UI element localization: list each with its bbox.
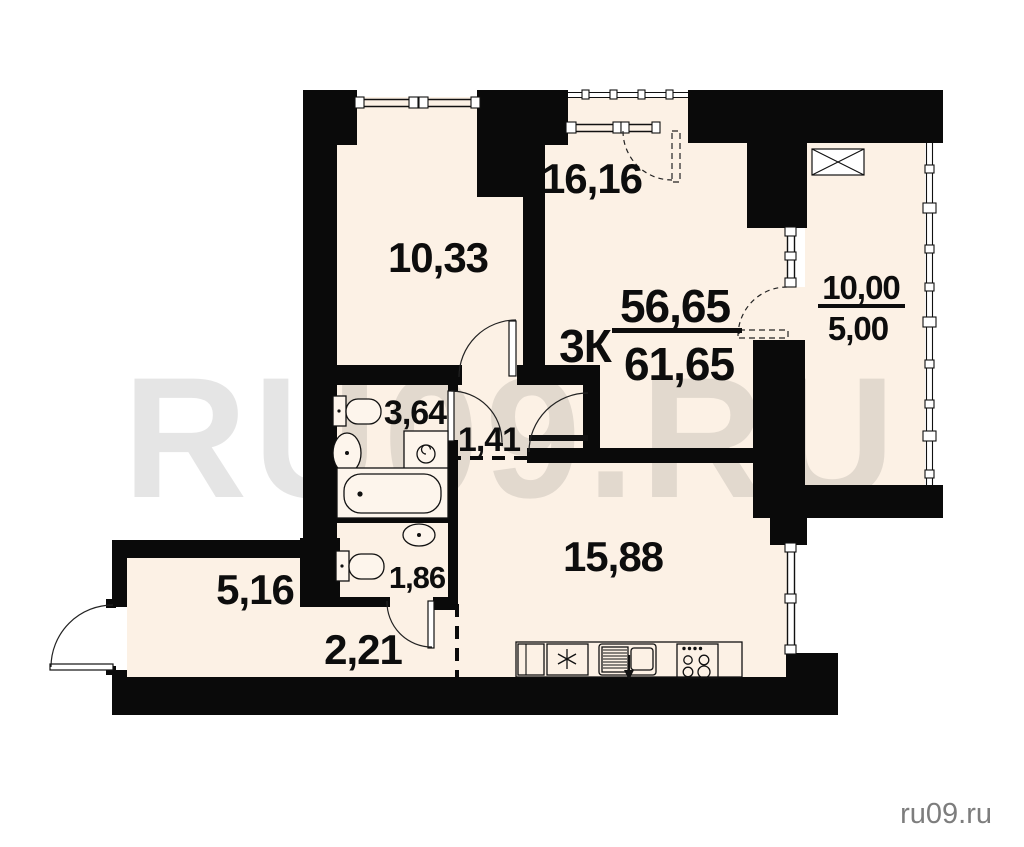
balcony-full-area-label: 10,00 <box>822 269 900 306</box>
living-balcony-window-icon <box>785 227 796 287</box>
bathroom-toilet-icon <box>333 396 381 426</box>
entrance-door-icon <box>50 599 116 675</box>
apartment-type-label: 3К <box>559 320 613 372</box>
balcony-fraction-line <box>818 304 905 308</box>
apartment-living-area-label: 56,65 <box>620 280 731 332</box>
room-label-kitchen: 15,88 <box>563 533 664 580</box>
floor-plan-page: RU09.RU <box>0 0 1024 847</box>
room-label-living: 16,16 <box>542 155 642 202</box>
room-label-corridor: 1,41 <box>458 421 520 459</box>
room-label-hallway: 2,21 <box>324 626 402 673</box>
wc-toilet-icon <box>336 551 384 581</box>
balcony-counted-area-label: 5,00 <box>828 310 888 347</box>
room-label-bathroom: 3,64 <box>384 394 447 432</box>
ventilation-box-icon <box>812 149 864 175</box>
room-label-bedroom: 10,33 <box>388 234 488 281</box>
apartment-total-area-label: 61,65 <box>624 338 735 390</box>
room-label-wc: 1,86 <box>389 560 446 595</box>
wc-sink-icon <box>403 524 435 546</box>
bathtub-icon <box>337 468 448 518</box>
room-label-entry-hall: 5,16 <box>216 566 294 613</box>
top-balcony-glazing-icon <box>568 90 688 99</box>
top-balcony-floor <box>568 97 688 145</box>
site-credit: ru09.ru <box>900 798 992 830</box>
hallway-floor <box>127 607 458 677</box>
balcony-door-gap-floor <box>780 287 805 345</box>
area-fraction-line <box>612 328 742 333</box>
floor-plan-svg: RU09.RU <box>0 0 1024 847</box>
bathroom-sink-icon <box>333 433 361 473</box>
